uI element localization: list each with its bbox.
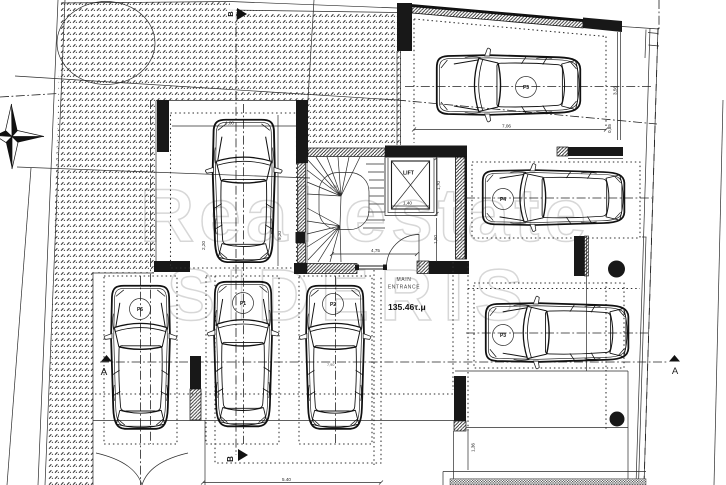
- svg-text:P5: P5: [523, 85, 529, 91]
- svg-text:4,00: 4,00: [225, 121, 234, 126]
- svg-text:B: B: [226, 11, 235, 17]
- svg-text:2,35: 2,35: [330, 185, 337, 189]
- svg-text:3,56: 3,56: [613, 86, 618, 95]
- svg-text:2,20: 2,20: [201, 241, 206, 250]
- svg-text:B: B: [226, 456, 235, 462]
- svg-text:5.40: 5.40: [282, 477, 291, 482]
- svg-text:A: A: [101, 367, 108, 378]
- svg-text:4,75: 4,75: [371, 248, 380, 253]
- svg-text:9,20: 9,20: [277, 231, 282, 240]
- svg-text:P6: P6: [137, 307, 143, 313]
- svg-text:P3: P3: [500, 333, 506, 339]
- svg-text:MAIN: MAIN: [397, 277, 412, 283]
- svg-text:ENTRANCE: ENTRANCE: [388, 285, 420, 291]
- svg-text:LIFT: LIFT: [403, 171, 415, 177]
- svg-text:1,50: 1,50: [433, 235, 438, 244]
- svg-text:1,36: 1,36: [471, 443, 476, 452]
- svg-text:0,85: 0,85: [607, 124, 612, 133]
- svg-text:P1: P1: [240, 301, 246, 307]
- svg-text:7,90: 7,90: [327, 363, 334, 367]
- svg-text:Real estate: Real estate: [140, 173, 591, 257]
- svg-text:7,06: 7,06: [502, 124, 511, 129]
- svg-text:P2: P2: [330, 302, 336, 308]
- svg-text:135.46τ.μ: 135.46τ.μ: [388, 302, 426, 312]
- svg-text:P4: P4: [500, 197, 506, 203]
- svg-text:A: A: [672, 366, 679, 377]
- svg-text:1,40: 1,40: [403, 201, 412, 206]
